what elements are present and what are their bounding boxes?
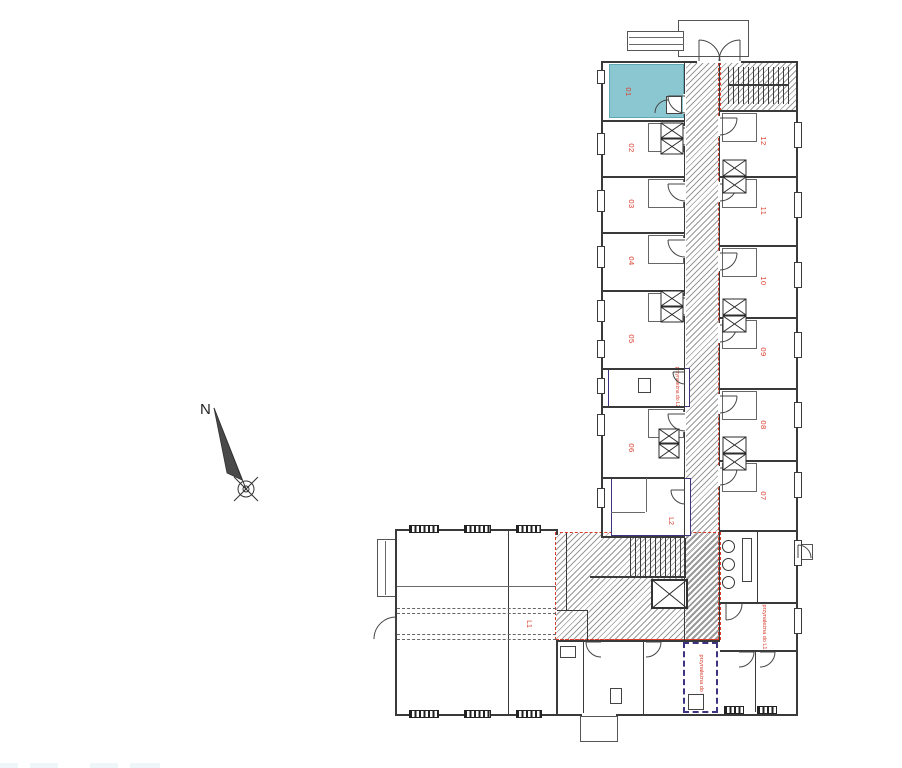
bathroom-pod	[722, 113, 757, 142]
bathroom-pod	[722, 391, 757, 420]
door-opening	[683, 126, 686, 146]
wall	[556, 529, 558, 535]
wall	[601, 232, 685, 234]
thin-partition	[385, 541, 386, 595]
door-arc	[760, 652, 775, 667]
round-fixture	[722, 558, 735, 571]
bathroom-pod	[722, 248, 757, 277]
wall	[601, 290, 685, 292]
door-opening	[718, 251, 721, 271]
bathroom-pod	[722, 320, 757, 349]
wall	[720, 602, 797, 604]
window	[409, 525, 439, 533]
fixture	[560, 646, 576, 658]
window	[597, 70, 605, 84]
cross-line	[723, 299, 746, 315]
window	[597, 378, 605, 394]
wall	[583, 642, 584, 714]
fixture	[610, 688, 622, 704]
cross-line	[723, 437, 746, 453]
room-05-label: 05	[622, 329, 642, 349]
window	[597, 488, 605, 508]
window	[794, 192, 802, 218]
cross-line	[723, 160, 746, 176]
bathroom-pod	[722, 179, 757, 208]
window	[597, 190, 605, 212]
thin-partition	[629, 44, 684, 45]
bathroom-pod	[648, 409, 684, 438]
storage-mid-annotation: przynależna do L2	[673, 365, 681, 409]
entrance-stair-ramp	[627, 31, 684, 51]
elevator-shaft	[651, 579, 688, 609]
window	[516, 710, 542, 718]
room-04-label: 04	[622, 251, 642, 271]
wall	[720, 388, 797, 390]
compass-rose-icon	[238, 481, 254, 497]
room-06-label: 06	[622, 438, 642, 458]
door-arc	[646, 642, 661, 657]
wall	[720, 110, 797, 112]
thin-partition	[397, 586, 556, 587]
door-opening	[718, 466, 721, 486]
wall	[720, 460, 797, 462]
door-opening	[582, 713, 616, 716]
fixture	[666, 96, 682, 114]
door-opening	[683, 182, 686, 202]
door-opening	[683, 412, 686, 432]
north-arrowhead	[214, 408, 242, 480]
window	[794, 332, 802, 358]
vent-shaft-icon	[723, 160, 746, 176]
cross-line	[659, 444, 679, 458]
room-02-label: 02	[622, 138, 642, 158]
thin-partition	[629, 37, 684, 38]
wall	[557, 610, 587, 611]
wall	[587, 610, 588, 640]
bathroom-pod	[648, 235, 684, 264]
window	[794, 608, 802, 634]
door-arc	[726, 604, 742, 620]
bathroom-pod	[648, 123, 684, 152]
window	[464, 710, 491, 718]
wall	[556, 642, 558, 714]
room-09-label: 09	[754, 342, 774, 362]
door-opening	[718, 182, 721, 202]
wall	[590, 576, 686, 578]
thin-partition	[646, 478, 647, 512]
driveway-dashed-line	[397, 613, 556, 614]
wall	[755, 652, 756, 712]
bathroom-pod	[722, 463, 757, 492]
driveway-dashed-line	[397, 639, 556, 640]
wall	[566, 533, 567, 610]
unit-l2	[611, 478, 691, 536]
storage-right-annotation: przynależna do L1	[760, 600, 768, 654]
staircase-mid-steps	[630, 538, 687, 576]
round-fixture	[722, 576, 735, 589]
window	[794, 540, 802, 566]
north-label: N	[200, 401, 211, 418]
fixture	[638, 378, 651, 393]
room-12-label: 12	[754, 131, 774, 151]
wall	[395, 529, 397, 716]
bathroom-pod	[648, 293, 684, 322]
window	[597, 133, 605, 155]
vent-shaft-icon	[723, 437, 746, 453]
window	[757, 706, 777, 714]
door-arc	[586, 642, 601, 657]
door-opening	[697, 61, 741, 63]
driveway-dashed-line	[397, 608, 556, 609]
door-arc	[374, 617, 396, 639]
door-opening	[683, 296, 686, 316]
window	[794, 262, 802, 288]
room-08-label: 08	[754, 415, 774, 435]
wall	[719, 63, 720, 640]
thin-partition	[611, 512, 645, 513]
cropped-edge-artifact	[0, 763, 170, 768]
fixture	[742, 538, 752, 582]
window	[597, 300, 605, 322]
wall	[556, 640, 720, 642]
wall	[720, 530, 797, 532]
window	[794, 472, 802, 498]
vent-shaft-icon	[723, 299, 746, 315]
cross-line	[723, 437, 746, 453]
window	[464, 525, 491, 533]
wall	[684, 63, 685, 640]
door-opening	[718, 323, 721, 343]
room-10-label: 10	[754, 271, 774, 291]
cross-line	[723, 299, 746, 315]
window	[597, 340, 605, 358]
round-fixture	[722, 540, 735, 553]
window	[409, 710, 439, 718]
exit-vestibule	[580, 716, 618, 742]
door-opening	[683, 94, 686, 114]
room-01-label: 01	[619, 82, 639, 102]
room-11-label: 11	[754, 201, 774, 221]
wall	[601, 536, 685, 538]
window	[597, 246, 605, 268]
unit-l1-label: L1	[524, 616, 534, 632]
wall	[643, 642, 644, 714]
door-opening	[718, 116, 721, 136]
room-03-label: 03	[622, 194, 642, 214]
wall	[601, 368, 685, 370]
door-arc	[739, 652, 754, 667]
cross-line	[659, 444, 679, 458]
fixture	[688, 694, 704, 710]
door-opening	[718, 394, 721, 414]
wall	[728, 84, 789, 86]
driveway-dashed-line	[397, 634, 556, 635]
side-balcony	[377, 539, 396, 597]
north-arrow: N	[200, 401, 258, 501]
wall	[757, 532, 758, 602]
window	[794, 402, 802, 428]
wall	[601, 406, 685, 408]
door-opening	[683, 238, 686, 258]
wall	[601, 477, 685, 479]
wall	[720, 245, 797, 247]
vent-shaft-icon	[659, 444, 679, 458]
entrance-canopy	[678, 20, 749, 57]
wall	[720, 317, 797, 319]
wall	[601, 176, 685, 178]
window	[724, 706, 744, 714]
unit-l2-label: L2	[666, 513, 676, 529]
wall	[508, 531, 509, 714]
bathroom-pod	[648, 179, 684, 208]
wall	[720, 650, 797, 652]
window	[516, 525, 541, 533]
room-07-label: 07	[754, 486, 774, 506]
wall	[601, 120, 685, 122]
window	[794, 122, 802, 148]
staircase-top-steps	[728, 67, 789, 104]
wall	[720, 176, 797, 178]
floor-plan-canvas: 01 02 03 04 05 06 12 11 10 09 08 07 L1 L…	[0, 0, 902, 768]
cross-line	[723, 160, 746, 176]
window	[597, 414, 605, 436]
